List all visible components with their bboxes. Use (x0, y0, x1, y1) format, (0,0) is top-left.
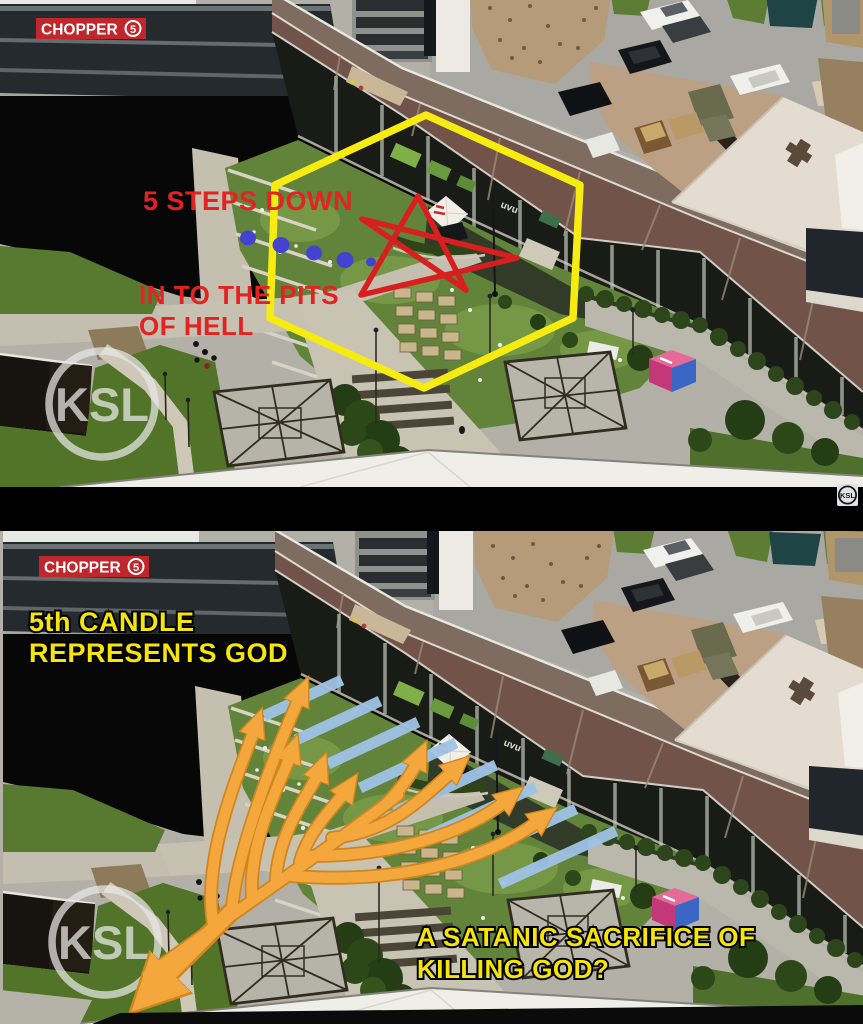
svg-text:5 STEPS DOWN: 5 STEPS DOWN (143, 186, 353, 216)
svg-text:A SATANIC SACRIFICE OF: A SATANIC SACRIFICE OF (417, 922, 755, 952)
svg-text:KSL: KSL (840, 491, 855, 500)
svg-text:OF HELL: OF HELL (139, 311, 254, 341)
svg-text:IN TO THE PITS: IN TO THE PITS (139, 280, 339, 310)
svg-text:5th CANDLE: 5th CANDLE (29, 607, 195, 637)
svg-text:REPRESENTS GOD: REPRESENTS GOD (29, 638, 288, 668)
svg-text:KILLING GOD?: KILLING GOD? (417, 954, 609, 984)
